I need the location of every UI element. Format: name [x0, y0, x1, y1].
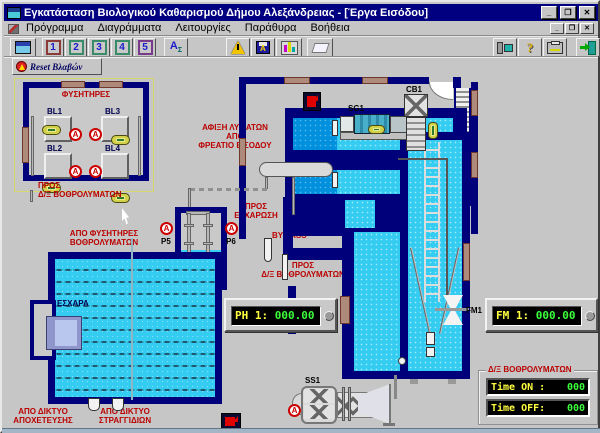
- wall-segment: [471, 90, 478, 116]
- toolbar: 1 2 3 4 5 AΣ A: [4, 36, 598, 58]
- wall-segment: [463, 243, 470, 281]
- app-window: Εγκατάσταση Βιολογικού Καθαρισμού Δήμου …: [0, 0, 600, 433]
- reset-faults-label: Reset Βλαβών: [30, 62, 82, 72]
- ss1-drive-bottom: [304, 405, 334, 419]
- wall-segment: [340, 296, 350, 324]
- fm-display-panel: FM 1: 000.00: [485, 298, 598, 332]
- alarm-list-button[interactable]: AΣ: [164, 38, 188, 57]
- inlet-stub: [112, 398, 124, 411]
- ph-display: PH 1: 000.00: [231, 306, 321, 326]
- reset-faults-button[interactable]: Reset Βλαβών: [12, 58, 102, 75]
- pipe-dashed: [190, 188, 268, 191]
- screen-5-label: 5: [138, 40, 153, 55]
- valve[interactable]: [426, 332, 435, 345]
- bypass-pipe: [264, 238, 272, 262]
- cb1-conveyor-belt: [406, 117, 426, 151]
- print-button[interactable]: [543, 38, 567, 57]
- restore-button[interactable]: ❐: [560, 6, 576, 19]
- wall-segment: [471, 152, 478, 178]
- alarm-list-icon: AΣ: [170, 40, 182, 54]
- child-minimize-button[interactable]: _: [550, 23, 564, 34]
- screen-device[interactable]: [46, 316, 82, 350]
- plc-status-icon: [497, 41, 513, 55]
- wall-segment: [22, 127, 29, 163]
- alarm-beacon: [303, 92, 321, 111]
- inlet-pipe: [259, 162, 333, 177]
- menu-bar: Πρόγραμμα Διαγράμματα Λειτουργίες Παράθυ…: [4, 22, 598, 35]
- inflow-label: ΑΦΙΞΗ ΛΥΜΑΤΩΝΑΠΟΦΡΕΑΤΙΟ ΕΙΣΟΔΟΥ: [195, 123, 275, 150]
- screen-5-button[interactable]: 5: [134, 38, 156, 57]
- exit-button[interactable]: [576, 38, 600, 57]
- sewer-network-label: ΑΠΟ ΔΙΚΤΥΟΑΠΟΧΕΤΕΥΣΗΣ: [7, 407, 79, 425]
- minimize-button[interactable]: _: [541, 6, 557, 19]
- fm1-label: FM1: [466, 306, 482, 315]
- valve[interactable]: [426, 347, 435, 357]
- ph-ack-button[interactable]: [324, 311, 334, 321]
- blower-bl2[interactable]: [44, 153, 72, 179]
- window-bottom-edge: [2, 428, 600, 433]
- cb1-conveyor-head[interactable]: [404, 94, 428, 117]
- dosing-pipe: [398, 158, 448, 160]
- eschara-label: ΕΣΧΑΡΑ: [57, 299, 89, 308]
- wall-segment: [99, 81, 123, 88]
- septage-timer-title: Δ/Ξ ΒΟΘΡΟΛΥΜΑΤΩΝ: [486, 365, 574, 374]
- time-on-label: Time ON :: [491, 381, 545, 393]
- building-wall: [239, 77, 429, 84]
- blowers-outlet-label-line2: Δ/Ξ ΒΟΘΡΟΛΥΜΑΤΩΝ: [38, 190, 122, 199]
- child-restore-button[interactable]: ❐: [565, 23, 579, 34]
- door-arc: [429, 82, 453, 100]
- menu-diagrams[interactable]: Διαγράμματα: [90, 22, 168, 35]
- alarm-save-icon: A: [256, 41, 270, 54]
- p5-label: P5: [161, 237, 171, 246]
- eraser-icon: [311, 43, 329, 53]
- time-on-display: Time ON : 000: [486, 378, 590, 396]
- flange: [203, 242, 213, 245]
- pipe: [292, 177, 295, 215]
- screen-3-button[interactable]: 3: [88, 38, 110, 57]
- pipe: [188, 188, 191, 208]
- level-sensor-rod: [131, 238, 133, 400]
- ph-value: 000.00: [275, 308, 315, 324]
- sg1-label: SG1: [348, 104, 364, 113]
- fm-ack-button[interactable]: [585, 311, 595, 321]
- blower-bl3-label: BL3: [105, 107, 120, 116]
- title-bar: Εγκατάσταση Βιολογικού Καθαρισμού Δήμου …: [4, 4, 598, 21]
- to-septage-tank-label: ΠΡΟΣΔ/Ξ ΒΟΘΡΟΛΥΜΑΤΩΝ: [260, 261, 346, 279]
- screen-2-button[interactable]: 2: [65, 38, 87, 57]
- printer-icon: [547, 42, 563, 54]
- help-button[interactable]: ?: [518, 38, 542, 57]
- bypass-pipe: [282, 254, 288, 280]
- sg1-motor-icon: [368, 125, 385, 134]
- dosing-pipe: [446, 160, 448, 296]
- cb1-motor-icon: [428, 122, 438, 139]
- fm-label: FM 1:: [496, 308, 529, 324]
- blower-motor-icon: [42, 125, 61, 135]
- screen-3-label: 3: [92, 40, 107, 55]
- alarm-indicator-bl2: A: [69, 165, 82, 178]
- blower-bl4-label: BL4: [105, 144, 120, 153]
- cb1-label: CB1: [406, 85, 422, 94]
- screen-1-label: 1: [46, 40, 61, 55]
- pipe-stub: [332, 120, 338, 136]
- blower-outlet-pipe: [30, 190, 33, 202]
- alarm-indicator-ss1: A: [288, 404, 301, 417]
- screen-2-label: 2: [69, 40, 84, 55]
- blower-bl2-label: BL2: [47, 144, 62, 153]
- plant-overview-icon: [15, 41, 31, 54]
- trend-chart-icon: [281, 41, 298, 55]
- ph-display-panel: PH 1: 000.00: [224, 298, 337, 332]
- window-title: Εγκατάσταση Βιολογικού Καθαρισμού Δήμου …: [24, 7, 538, 19]
- to-screening-label: ΠΡΟΣΕΣΧΑΡΩΣΗ: [227, 202, 285, 220]
- flange: [184, 242, 194, 245]
- tank-leg: [410, 379, 418, 384]
- time-off-value: 000: [567, 402, 585, 414]
- channel-water-deep: [293, 118, 337, 150]
- time-off-label: Time OFF:: [491, 402, 545, 414]
- air-pipe: [31, 116, 34, 176]
- alarm-indicator-p6: A: [225, 222, 238, 235]
- fm-display: FM 1: 000.00: [492, 306, 582, 326]
- wall-segment: [284, 77, 310, 84]
- menu-functions[interactable]: Λειτουργίες: [168, 22, 237, 35]
- wall-segment: [362, 77, 388, 84]
- warning-button[interactable]: [226, 38, 250, 57]
- app-icon: [7, 7, 21, 19]
- child-close-button[interactable]: ✕: [580, 23, 594, 34]
- alarm-indicator-bl1: A: [69, 128, 82, 141]
- ladder: [424, 142, 440, 302]
- valve-ball: [398, 357, 406, 365]
- p6-label: P6: [226, 237, 236, 246]
- ss1-feed-pipe: [394, 375, 397, 399]
- menu-windows[interactable]: Παράθυρα: [238, 22, 304, 35]
- alarm-indicator-bl3: A: [89, 128, 102, 141]
- lower-tank-water: [354, 232, 400, 371]
- clean-screen-button[interactable]: [307, 38, 333, 57]
- exit-door-icon: [580, 41, 596, 55]
- inlet-stub: [88, 398, 100, 411]
- plc-status-button[interactable]: [493, 38, 517, 57]
- pipe-stub: [332, 172, 338, 188]
- ss1-drive-top: [304, 389, 334, 403]
- help-icon: ?: [527, 40, 534, 56]
- ss1-flange: [348, 387, 351, 421]
- save-alarms-button[interactable]: A: [251, 38, 275, 57]
- screen-1-button[interactable]: 1: [42, 38, 64, 57]
- ph-label: PH 1:: [235, 308, 268, 324]
- ss1-discharge-cone: [358, 384, 390, 424]
- fm-value: 000.00: [536, 308, 576, 324]
- tank-leg: [448, 379, 456, 384]
- ss1-flange: [342, 387, 345, 421]
- alarm-reset-icon: [16, 61, 27, 72]
- flange: [184, 224, 194, 227]
- close-button[interactable]: ✕: [579, 6, 595, 19]
- mouse-cursor: [122, 208, 133, 225]
- plant-overview-button[interactable]: [10, 38, 36, 57]
- mdi-child-icon[interactable]: [8, 24, 19, 34]
- building-wall: [453, 77, 461, 88]
- blowers-panel: ΦΥΣΗΤΗΡΕΣ BL1 BL3 A A BL2 BL4 A A: [14, 78, 154, 192]
- sg1-box: [340, 116, 354, 132]
- menu-program[interactable]: Πρόγραμμα: [19, 22, 90, 35]
- wall-segment: [239, 138, 246, 166]
- alarm-indicator-p5: A: [160, 222, 173, 235]
- warning-icon: [230, 41, 246, 55]
- flow-meter-bar: [435, 308, 469, 311]
- channel-water: [345, 200, 375, 228]
- ss1-label: SS1: [305, 376, 320, 385]
- time-off-display: Time OFF: 000: [486, 399, 590, 417]
- ss1-foot: [383, 423, 395, 426]
- trend-report-button[interactable]: [276, 38, 302, 57]
- blowers-outlet-label-line1: ΠΡΟΣ: [38, 181, 60, 190]
- screen-4-label: 4: [115, 40, 130, 55]
- blower-bl4[interactable]: [101, 153, 129, 179]
- blower-bl1-label: BL1: [47, 107, 62, 116]
- ss1-cone-edge: [389, 384, 391, 424]
- time-on-value: 000: [567, 381, 585, 393]
- wall-segment: [61, 81, 85, 88]
- flange: [203, 224, 213, 227]
- alarm-indicator-bl4: A: [89, 165, 102, 178]
- menu-help[interactable]: Βοήθεια: [303, 22, 356, 35]
- screen-4-button[interactable]: 4: [111, 38, 133, 57]
- blowers-title: ΦΥΣΗΤΗΡΕΣ: [33, 90, 139, 99]
- air-pipe: [138, 116, 141, 176]
